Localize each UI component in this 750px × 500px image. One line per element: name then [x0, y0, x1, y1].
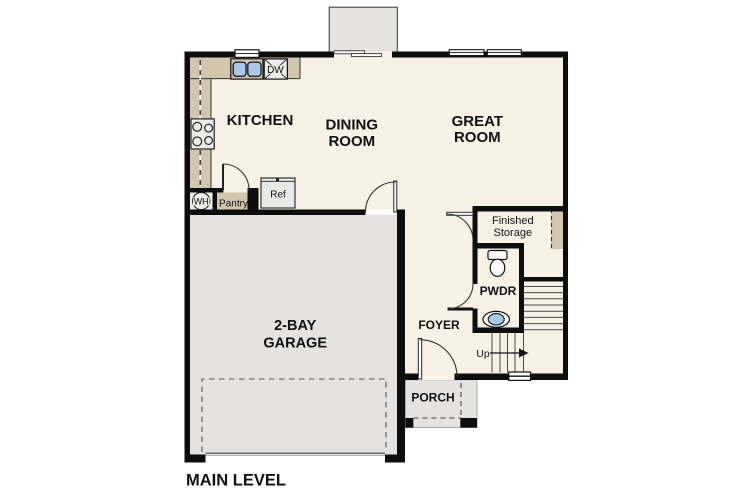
svg-text:Up: Up: [476, 348, 490, 360]
svg-text:KITCHEN: KITCHEN: [227, 112, 294, 129]
svg-text:DINING: DINING: [326, 116, 379, 133]
svg-text:ROOM: ROOM: [454, 129, 501, 146]
svg-text:Ref: Ref: [270, 190, 286, 201]
svg-text:PWDR: PWDR: [480, 284, 517, 298]
svg-text:2-BAY: 2-BAY: [274, 318, 317, 334]
svg-text:Finished: Finished: [492, 215, 534, 227]
svg-text:WH: WH: [194, 197, 209, 207]
svg-text:Storage: Storage: [494, 227, 533, 239]
svg-text:GARAGE: GARAGE: [263, 336, 327, 352]
svg-text:ROOM: ROOM: [328, 133, 375, 150]
svg-text:DW: DW: [267, 65, 284, 76]
svg-text:PORCH: PORCH: [411, 391, 454, 405]
svg-text:Pantry: Pantry: [219, 199, 248, 210]
svg-text:FOYER: FOYER: [418, 318, 460, 332]
svg-text:GREAT: GREAT: [452, 113, 503, 130]
svg-text:MAIN LEVEL: MAIN LEVEL: [186, 472, 286, 490]
